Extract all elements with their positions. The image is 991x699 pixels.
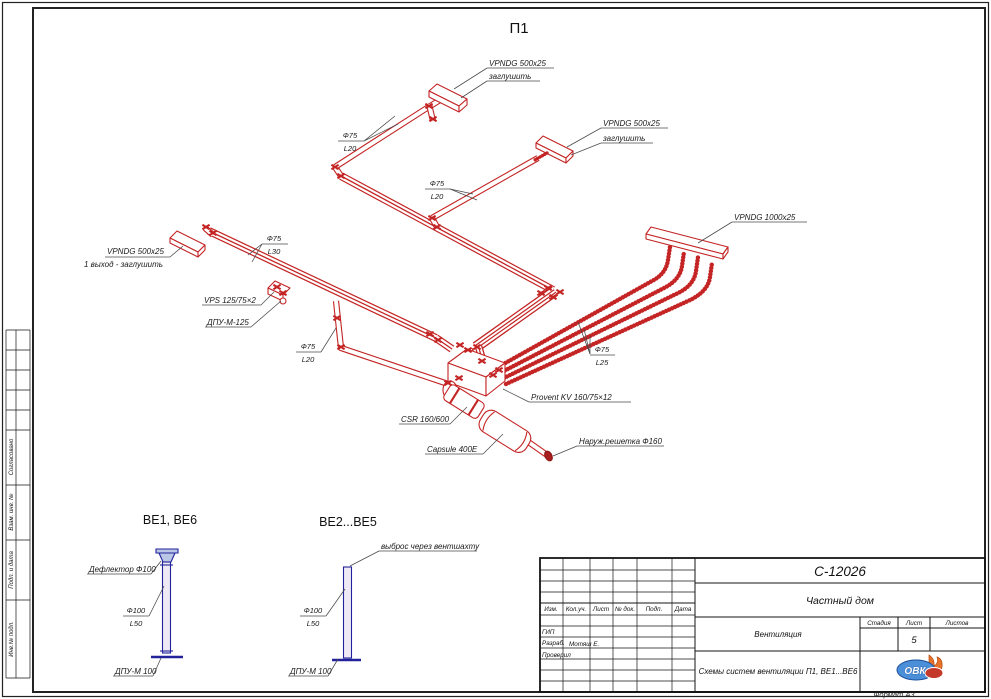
tb-role-gip: ГИП	[542, 629, 555, 636]
dim0-l: L20	[344, 144, 357, 153]
tb-name-razrab: Мотяш Е.	[569, 641, 599, 648]
tb-object-name: Частный дом	[806, 595, 874, 607]
dim1-l: L20	[431, 192, 444, 201]
capsule-silencer	[476, 407, 535, 456]
drawing-canvas: Согласовано Взам. инв. № Подп. и дата Ин…	[0, 0, 991, 699]
tb-sheet-title: Схемы систем вентиляции П1, ВЕ1...ВЕ6	[699, 667, 858, 676]
grille-left-label: VPNDG 500x25	[107, 247, 164, 256]
dpu125-label: ДПУ-М-125	[206, 318, 249, 327]
be1-dim-d: Ф100	[127, 606, 146, 615]
grille-left-note: 1 выход - заглушить	[84, 260, 163, 269]
stamp-approved-label: Согласовано	[9, 438, 15, 475]
stamp-inv-label: Инв.№ подл.	[8, 621, 15, 657]
annotation-grate: Наруж.решетка Ф160	[553, 437, 664, 456]
vps-fitting	[268, 281, 290, 304]
be2-dim-d: Ф100	[304, 606, 323, 615]
grille-vpndg-500-top2	[533, 136, 573, 163]
dim0-d: Ф75	[343, 131, 358, 140]
tb-section: Вентиляция	[754, 630, 802, 639]
grille-top1-note: заглушить	[488, 72, 531, 81]
deflector-label: Дефлектор Ф100	[88, 565, 156, 574]
annotation-be2-note: выброс через вентшахту	[350, 542, 480, 566]
annotation-csr: CSR 160/600	[399, 407, 467, 424]
company-logo: ОВК	[897, 655, 943, 680]
tb-col-ndok: № док.	[615, 605, 635, 613]
grille-top1-label: VPNDG 500x25	[489, 59, 546, 68]
tb-role-razrab: Разраб.	[542, 639, 565, 647]
tb-stage-label: Стадия	[867, 619, 891, 627]
p1-title: П1	[509, 20, 528, 37]
tb-col-podp: Подп.	[646, 605, 663, 613]
be2-note-label: выброс через вентшахту	[381, 542, 480, 551]
vps-label: VPS 125/75×2	[204, 296, 256, 305]
tb-sheet-number: 5	[911, 635, 917, 646]
dim2-d: Ф75	[267, 234, 282, 243]
capsule-label: Capsule 400E	[427, 445, 478, 454]
tb-sheets-label: Листов	[945, 620, 970, 627]
title-block: Изм. Кол.уч. Лист № док. Подп. Дата ГИП …	[540, 558, 985, 692]
annotation-be1-dim: Ф100 L50	[123, 586, 164, 628]
be1-dim-l: L50	[130, 619, 143, 628]
page-frame	[3, 3, 989, 697]
annotation-grille-top1: VPNDG 500x25 заглушить	[454, 59, 554, 98]
grate-label: Наруж.решетка Ф160	[579, 437, 662, 446]
dim4-l: L25	[596, 358, 609, 367]
p1-scheme: П1	[84, 20, 807, 462]
tb-sheet-label: Лист	[905, 620, 922, 627]
stamp-podp-label: Подп. и дата	[9, 551, 15, 589]
be2-title: ВЕ2...ВЕ5	[319, 515, 377, 529]
dim1-d: Ф75	[430, 179, 445, 188]
annotation-dim-l20-c: Ф75 L20	[296, 328, 336, 364]
annotation-provent: Provent KV 160/75×12	[503, 389, 631, 402]
pipe-bundle-grille2	[432, 158, 538, 227]
be2-dim-l: L50	[307, 619, 320, 628]
tb-col-koluch: Кол.уч.	[566, 606, 587, 613]
grille-vpndg-500-left	[170, 231, 205, 257]
tb-col-izm: Изм.	[544, 606, 557, 613]
dim3-l: L20	[302, 355, 315, 364]
be1-scheme: ВЕ1, ВЕ6 Дефлектор Ф100 Ф100 L50 ДПУ-М 1…	[87, 513, 197, 676]
annotation-grille-left: VPNDG 500x25 1 выход - заглушить	[84, 246, 183, 269]
stamp-vzam-label: Взам. инв. №	[8, 493, 15, 531]
annotation-deflector: Дефлектор Ф100	[87, 561, 161, 574]
annotation-be2-dim: Ф100 L50	[300, 589, 345, 628]
tb-role-proveril: Проверил	[542, 652, 571, 659]
annotation-grille-top2: VPNDG 500x25 заглушить	[567, 119, 668, 155]
dim4-d: Ф75	[595, 345, 610, 354]
annotation-grille-right: VPNDG 1000x25	[698, 213, 807, 243]
format-note: Формат А3	[873, 690, 915, 699]
be1-title: ВЕ1, ВЕ6	[143, 513, 197, 527]
tb-doc-number: С-12026	[814, 564, 866, 579]
dim2-l: L30	[268, 247, 281, 256]
drawing-sheet: Согласовано Взам. инв. № Подп. и дата Ин…	[0, 0, 991, 699]
grille-top2-label: VPNDG 500x25	[603, 119, 660, 128]
be1-dpu-label: ДПУ-М 100	[114, 667, 157, 676]
provent-label: Provent KV 160/75×12	[531, 393, 612, 402]
grille-right-label: VPNDG 1000x25	[734, 213, 796, 222]
csr-label: CSR 160/600	[401, 415, 450, 424]
annotation-vps: VPS 125/75×2	[202, 292, 274, 305]
be2-scheme: ВЕ2...ВЕ5 выброс через вентшахту Ф100 L5…	[288, 515, 480, 676]
side-stamp: Согласовано Взам. инв. № Подп. и дата Ин…	[6, 330, 30, 678]
be2-dpu-label: ДПУ-М 100	[289, 667, 332, 676]
logo-text: ОВК	[904, 666, 926, 677]
grille-top2-note: заглушить	[602, 134, 645, 143]
tb-col-list: Лист	[592, 606, 609, 613]
pipe-bundle-left-collector	[205, 228, 452, 349]
annotation-be2-dpu: ДПУ-М 100	[288, 659, 338, 676]
annotation-be1-dpu: ДПУ-М 100	[113, 658, 161, 676]
elbow-markers	[202, 104, 563, 386]
tb-col-data: Дата	[674, 606, 692, 613]
dim3-d: Ф75	[301, 342, 316, 351]
